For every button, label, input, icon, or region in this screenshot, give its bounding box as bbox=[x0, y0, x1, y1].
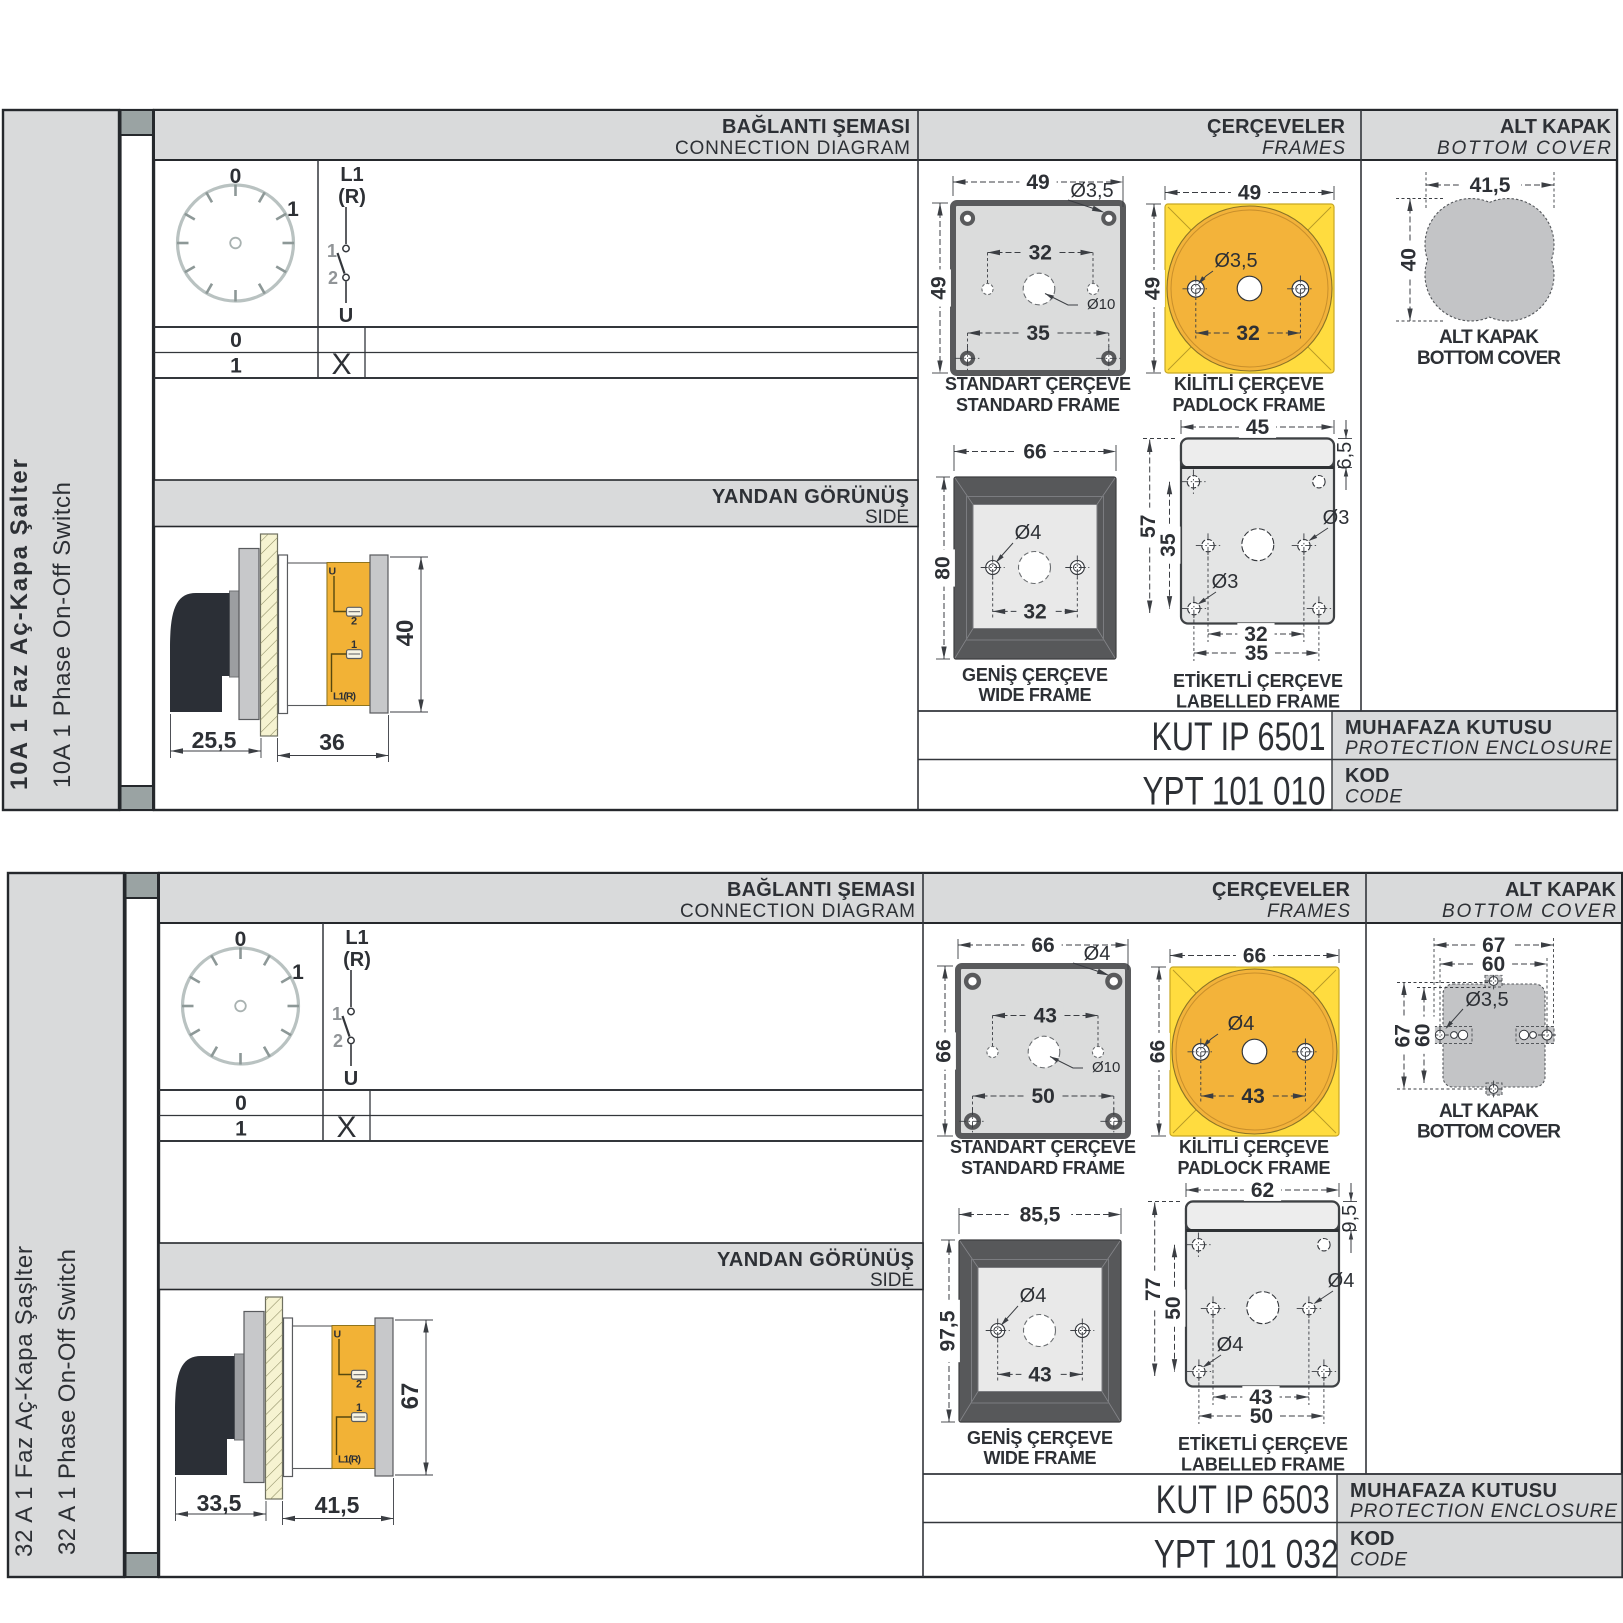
svg-text:U: U bbox=[339, 305, 353, 327]
svg-text:66: 66 bbox=[1023, 441, 1046, 464]
svg-text:1: 1 bbox=[230, 355, 242, 378]
svg-text:KİLİTLİ ÇERÇEVE: KİLİTLİ ÇERÇEVE bbox=[1174, 374, 1324, 394]
svg-text:62: 62 bbox=[1251, 1179, 1274, 1202]
svg-text:0: 0 bbox=[230, 165, 242, 188]
svg-text:97,5: 97,5 bbox=[936, 1310, 959, 1351]
svg-text:FRAMES: FRAMES bbox=[1262, 138, 1345, 159]
svg-text:LABELLED FRAME: LABELLED FRAME bbox=[1181, 1455, 1345, 1475]
svg-text:KİLİTLİ ÇERÇEVE: KİLİTLİ ÇERÇEVE bbox=[1179, 1137, 1329, 1157]
svg-text:43: 43 bbox=[1241, 1085, 1264, 1108]
svg-text:1: 1 bbox=[292, 961, 304, 984]
svg-text:MUHAFAZA KUTUSU: MUHAFAZA KUTUSU bbox=[1345, 717, 1552, 739]
svg-text:32: 32 bbox=[1029, 242, 1052, 265]
svg-text:Ø4: Ø4 bbox=[1217, 1334, 1244, 1356]
svg-text:STANDART ÇERÇEVE: STANDART ÇERÇEVE bbox=[950, 1137, 1136, 1157]
svg-text:25,5: 25,5 bbox=[192, 727, 237, 753]
svg-text:36: 36 bbox=[319, 729, 345, 755]
svg-text:STANDART ÇERÇEVE: STANDART ÇERÇEVE bbox=[945, 374, 1131, 394]
svg-text:6,5: 6,5 bbox=[1334, 442, 1356, 470]
svg-text:49: 49 bbox=[927, 276, 950, 299]
svg-text:YPT 101 010: YPT 101 010 bbox=[1143, 770, 1326, 814]
svg-text:KUT IP 6501: KUT IP 6501 bbox=[1152, 715, 1326, 759]
svg-text:0: 0 bbox=[230, 329, 242, 352]
svg-text:66: 66 bbox=[1031, 934, 1054, 957]
svg-text:32 A 1 Phase On-Off Switch: 32 A 1 Phase On-Off Switch bbox=[54, 1249, 81, 1555]
svg-text:80: 80 bbox=[931, 556, 954, 579]
svg-text:35: 35 bbox=[1026, 322, 1050, 345]
svg-text:BAĞLANTI ŞEMASI: BAĞLANTI ŞEMASI bbox=[722, 114, 910, 138]
svg-text:66: 66 bbox=[1243, 945, 1266, 968]
svg-text:Ø3,5: Ø3,5 bbox=[1214, 250, 1257, 272]
svg-text:ALT KAPAK: ALT KAPAK bbox=[1439, 327, 1539, 348]
svg-text:Ø3: Ø3 bbox=[1212, 571, 1239, 593]
svg-text:1: 1 bbox=[287, 198, 299, 221]
svg-text:Ø3,5: Ø3,5 bbox=[1465, 989, 1508, 1011]
svg-text:BAĞLANTI ŞEMASI: BAĞLANTI ŞEMASI bbox=[727, 877, 915, 901]
svg-text:ALT KAPAK: ALT KAPAK bbox=[1505, 879, 1617, 901]
svg-text:(R): (R) bbox=[338, 186, 366, 208]
svg-text:L1(R): L1(R) bbox=[338, 1454, 361, 1466]
svg-text:49: 49 bbox=[1026, 171, 1049, 194]
svg-text:1: 1 bbox=[235, 1118, 247, 1141]
svg-text:2: 2 bbox=[328, 268, 338, 288]
svg-text:Ø4: Ø4 bbox=[1228, 1013, 1255, 1035]
svg-text:STANDARD FRAME: STANDARD FRAME bbox=[956, 395, 1120, 415]
svg-text:ALT KAPAK: ALT KAPAK bbox=[1500, 116, 1612, 138]
svg-text:ETİKETLİ ÇERÇEVE: ETİKETLİ ÇERÇEVE bbox=[1178, 1434, 1348, 1454]
svg-text:50: 50 bbox=[1250, 1405, 1273, 1428]
svg-text:60: 60 bbox=[1482, 953, 1505, 976]
svg-text:FRAMES: FRAMES bbox=[1267, 901, 1350, 922]
svg-text:YANDAN GÖRÜNÜŞ: YANDAN GÖRÜNÜŞ bbox=[712, 485, 909, 508]
svg-text:PROTECTION ENCLOSURE: PROTECTION ENCLOSURE bbox=[1345, 738, 1612, 759]
svg-text:33,5: 33,5 bbox=[197, 1490, 242, 1516]
svg-text:L1(R): L1(R) bbox=[333, 691, 356, 703]
svg-text:1: 1 bbox=[327, 241, 337, 261]
svg-text:32 A 1 Faz Aç-Kapa Şaşlter: 32 A 1 Faz Aç-Kapa Şaşlter bbox=[11, 1246, 38, 1557]
svg-text:60: 60 bbox=[1411, 1024, 1434, 1047]
svg-text:1: 1 bbox=[332, 1004, 342, 1024]
svg-text:49: 49 bbox=[1238, 182, 1261, 205]
svg-text:Ø4: Ø4 bbox=[1084, 943, 1111, 965]
svg-text:X: X bbox=[336, 1111, 356, 1144]
svg-text:(R): (R) bbox=[343, 949, 371, 971]
svg-text:9,5: 9,5 bbox=[1339, 1205, 1361, 1233]
svg-text:2: 2 bbox=[351, 616, 357, 628]
svg-text:BOTTOM COVER: BOTTOM COVER bbox=[1417, 1122, 1561, 1143]
svg-text:STANDARD FRAME: STANDARD FRAME bbox=[961, 1158, 1125, 1178]
svg-text:GENİŞ ÇERÇEVE: GENİŞ ÇERÇEVE bbox=[967, 1428, 1113, 1448]
svg-text:BOTTOM COVER: BOTTOM COVER bbox=[1442, 901, 1616, 922]
svg-text:KOD: KOD bbox=[1350, 1528, 1394, 1550]
svg-text:Ø3: Ø3 bbox=[1323, 507, 1350, 529]
svg-text:2: 2 bbox=[356, 1379, 362, 1391]
svg-text:10A 1 Phase On-Off Switch: 10A 1 Phase On-Off Switch bbox=[49, 482, 76, 788]
svg-text:CONNECTION DIAGRAM: CONNECTION DIAGRAM bbox=[680, 901, 915, 922]
svg-text:BOTTOM COVER: BOTTOM COVER bbox=[1437, 138, 1611, 159]
svg-text:U: U bbox=[344, 1068, 358, 1090]
svg-text:SIDE: SIDE bbox=[870, 1270, 914, 1291]
svg-text:Ø4: Ø4 bbox=[1015, 522, 1042, 544]
svg-text:50: 50 bbox=[1031, 1085, 1054, 1108]
svg-text:Ø10: Ø10 bbox=[1092, 1059, 1120, 1076]
svg-text:YANDAN GÖRÜNÜŞ: YANDAN GÖRÜNÜŞ bbox=[717, 1248, 914, 1271]
svg-text:66: 66 bbox=[932, 1039, 955, 1062]
svg-text:LABELLED FRAME: LABELLED FRAME bbox=[1176, 692, 1340, 712]
svg-text:43: 43 bbox=[1028, 1363, 1051, 1386]
svg-text:40: 40 bbox=[1397, 248, 1420, 271]
svg-text:66: 66 bbox=[1146, 1040, 1169, 1063]
svg-text:SIDE: SIDE bbox=[865, 507, 909, 528]
svg-text:2: 2 bbox=[333, 1031, 343, 1051]
svg-text:KOD: KOD bbox=[1345, 765, 1389, 787]
svg-text:67: 67 bbox=[397, 1383, 424, 1410]
svg-text:ALT KAPAK: ALT KAPAK bbox=[1439, 1101, 1539, 1122]
svg-text:GENİŞ ÇERÇEVE: GENİŞ ÇERÇEVE bbox=[962, 665, 1108, 685]
svg-text:CODE: CODE bbox=[1345, 787, 1402, 808]
svg-text:MUHAFAZA KUTUSU: MUHAFAZA KUTUSU bbox=[1350, 1480, 1557, 1502]
svg-text:PADLOCK FRAME: PADLOCK FRAME bbox=[1173, 395, 1326, 415]
svg-text:40: 40 bbox=[392, 620, 419, 647]
svg-text:L1: L1 bbox=[345, 927, 368, 949]
svg-text:X: X bbox=[331, 348, 351, 381]
svg-text:32: 32 bbox=[1236, 322, 1259, 345]
svg-text:U: U bbox=[334, 1329, 342, 1341]
svg-text:YPT 101 032: YPT 101 032 bbox=[1154, 1533, 1339, 1577]
svg-text:85,5: 85,5 bbox=[1020, 1204, 1061, 1227]
svg-text:41,5: 41,5 bbox=[1470, 174, 1511, 197]
svg-text:43: 43 bbox=[1034, 1005, 1057, 1028]
svg-text:49: 49 bbox=[1141, 277, 1164, 300]
svg-text:KUT IP 6503: KUT IP 6503 bbox=[1156, 1478, 1330, 1522]
svg-text:BOTTOM COVER: BOTTOM COVER bbox=[1417, 348, 1561, 369]
svg-text:CONNECTION DIAGRAM: CONNECTION DIAGRAM bbox=[675, 138, 910, 159]
svg-text:ETİKETLİ ÇERÇEVE: ETİKETLİ ÇERÇEVE bbox=[1173, 671, 1343, 691]
svg-text:Ø10: Ø10 bbox=[1087, 296, 1115, 313]
svg-text:32: 32 bbox=[1023, 600, 1046, 623]
svg-text:10A 1 Faz Aç-Kapa Şalter: 10A 1 Faz Aç-Kapa Şalter bbox=[6, 459, 33, 790]
svg-text:50: 50 bbox=[1162, 1296, 1185, 1319]
svg-text:Ø3,5: Ø3,5 bbox=[1070, 180, 1113, 202]
svg-text:L1: L1 bbox=[340, 164, 363, 186]
svg-text:CODE: CODE bbox=[1350, 1550, 1407, 1571]
svg-text:41,5: 41,5 bbox=[315, 1492, 360, 1518]
svg-text:0: 0 bbox=[235, 928, 247, 951]
svg-text:35: 35 bbox=[1157, 533, 1180, 557]
svg-text:45: 45 bbox=[1246, 416, 1270, 439]
svg-text:35: 35 bbox=[1245, 642, 1269, 665]
svg-text:WIDE FRAME: WIDE FRAME bbox=[984, 1448, 1097, 1468]
svg-text:ÇERÇEVELER: ÇERÇEVELER bbox=[1207, 116, 1346, 138]
svg-text:U: U bbox=[329, 566, 337, 578]
svg-text:PADLOCK FRAME: PADLOCK FRAME bbox=[1178, 1158, 1331, 1178]
svg-text:WIDE FRAME: WIDE FRAME bbox=[979, 685, 1092, 705]
svg-text:0: 0 bbox=[235, 1092, 247, 1115]
svg-text:PROTECTION ENCLOSURE: PROTECTION ENCLOSURE bbox=[1350, 1501, 1617, 1522]
svg-text:Ø4: Ø4 bbox=[1328, 1270, 1355, 1292]
svg-text:ÇERÇEVELER: ÇERÇEVELER bbox=[1212, 879, 1351, 901]
svg-text:Ø4: Ø4 bbox=[1020, 1285, 1047, 1307]
